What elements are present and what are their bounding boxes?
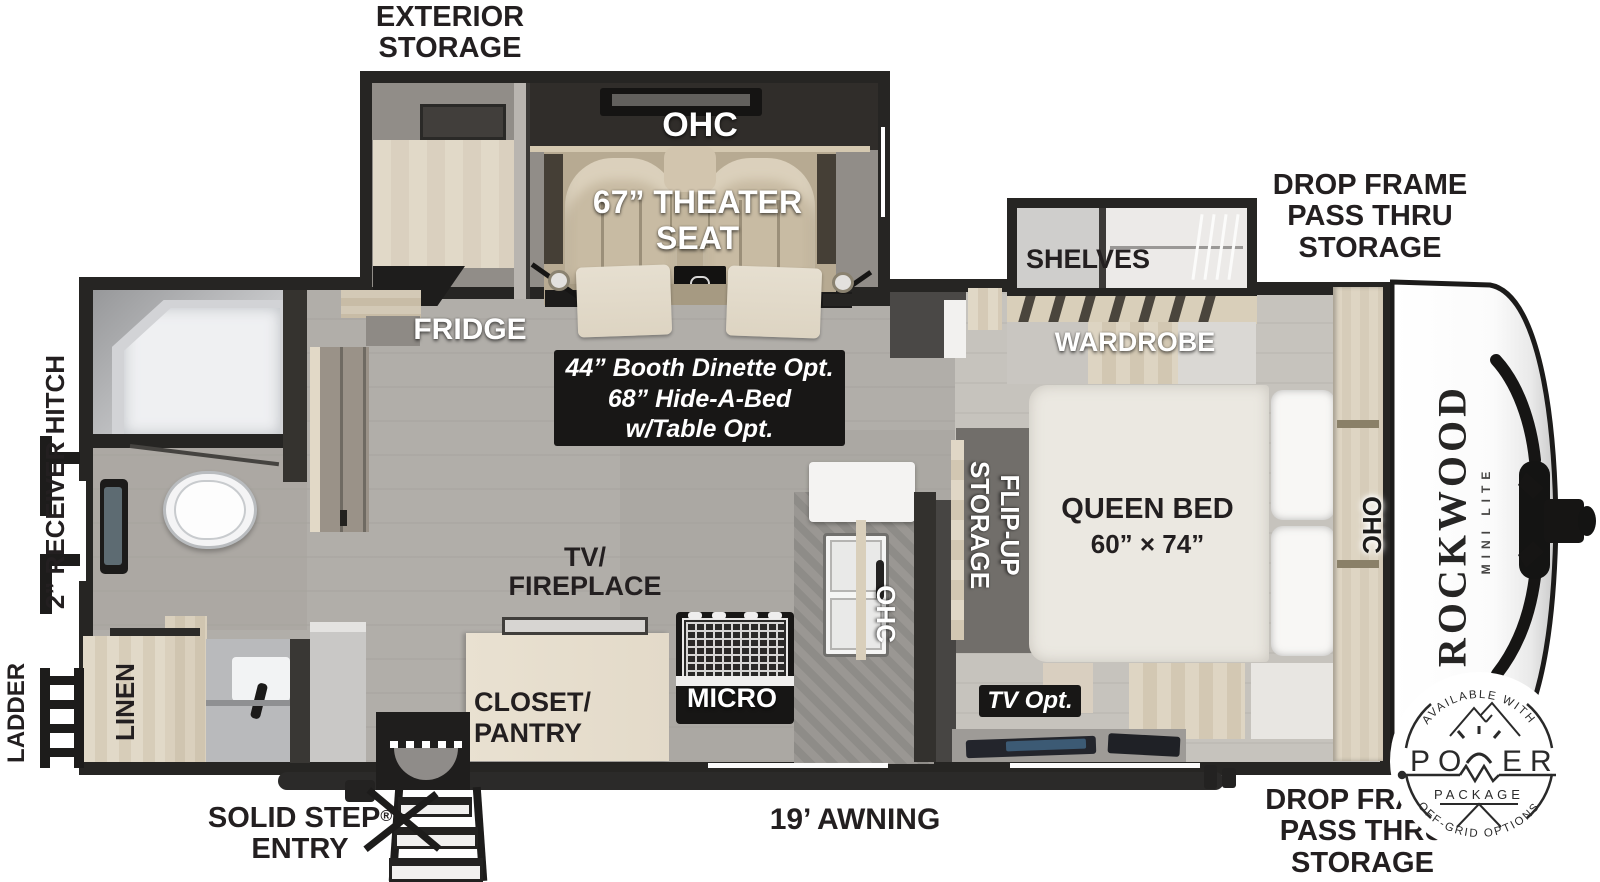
svg-text:OFF-GRID OPTIONS: OFF-GRID OPTIONS (1415, 800, 1543, 840)
svg-text:PO: PO (1410, 745, 1469, 778)
svg-text:ER: ER (1502, 745, 1560, 778)
svg-text:AVAILABLE WITH: AVAILABLE WITH (1420, 689, 1538, 727)
svg-text:PACKAGE: PACKAGE (1434, 787, 1524, 802)
